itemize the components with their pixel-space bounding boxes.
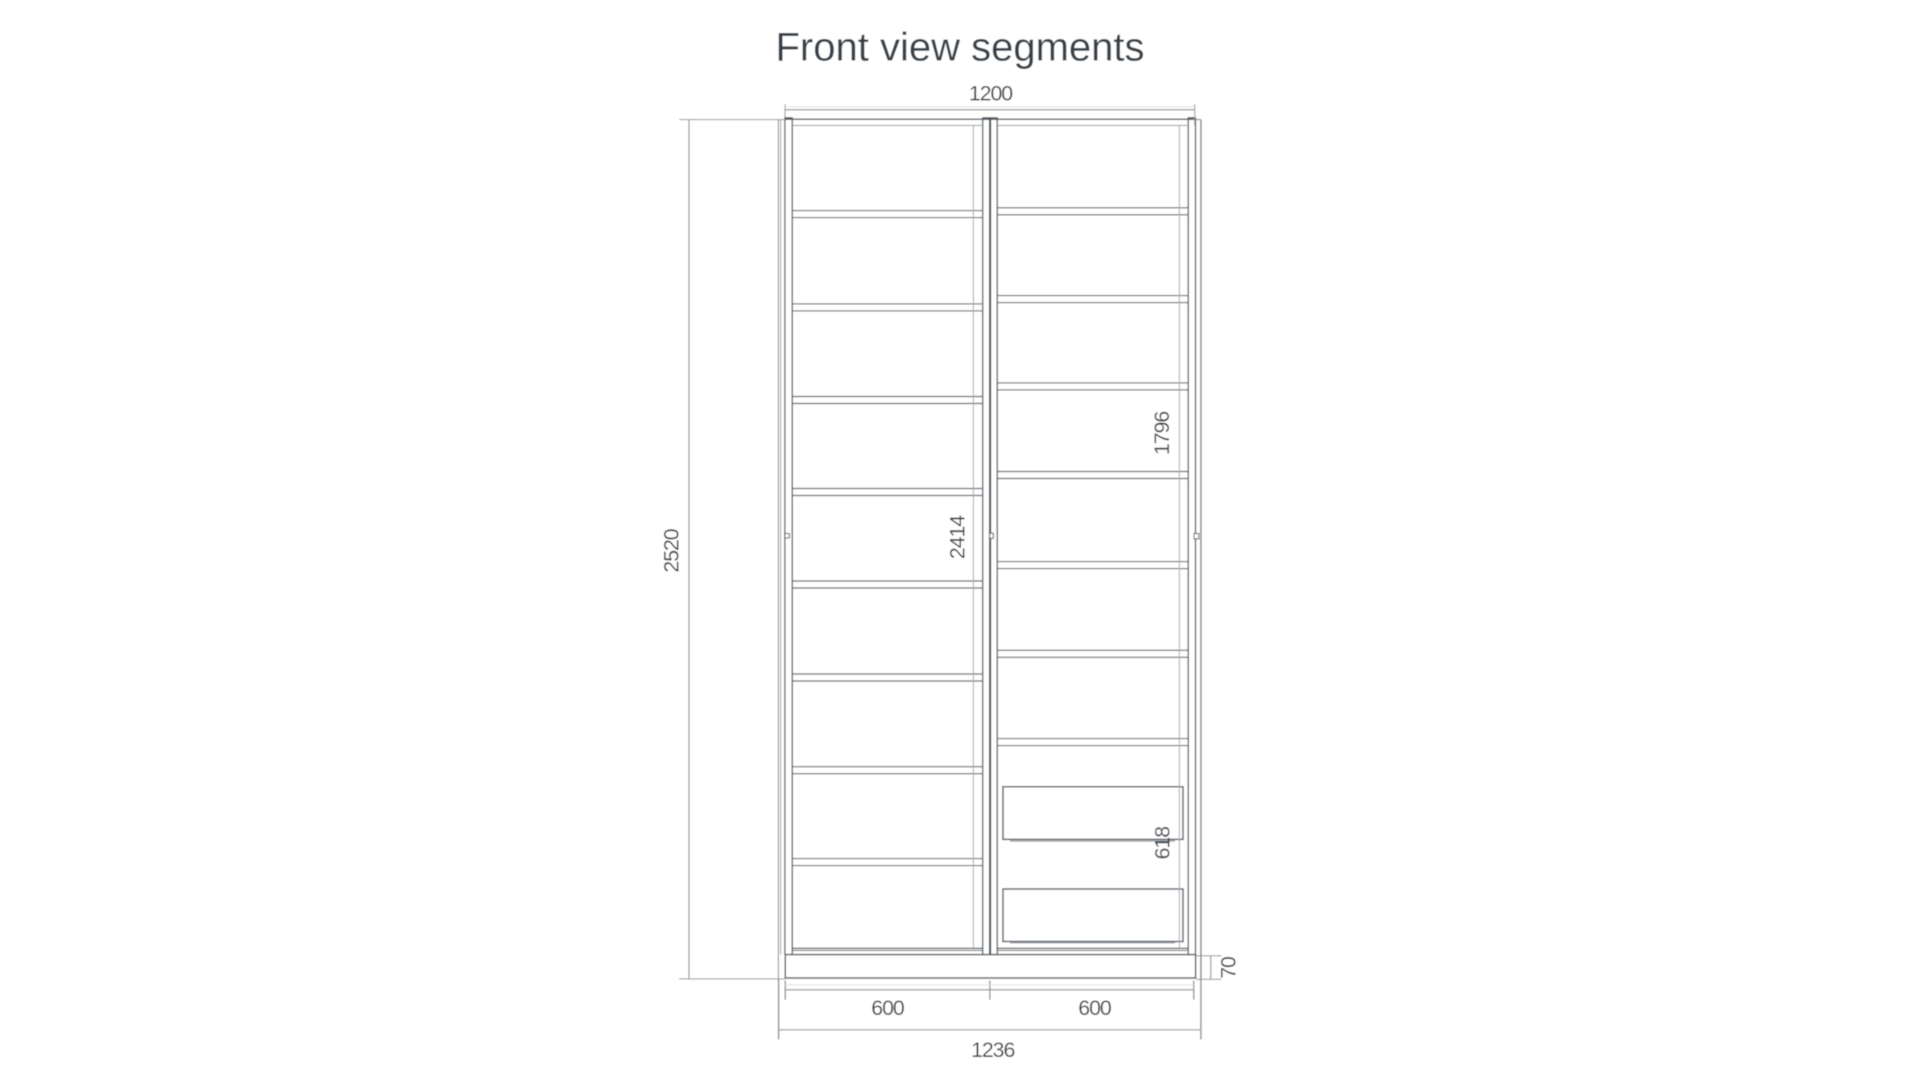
svg-text:2414: 2414 bbox=[946, 515, 970, 559]
svg-text:70: 70 bbox=[1217, 956, 1241, 979]
svg-text:1200: 1200 bbox=[969, 81, 1013, 105]
svg-text:600: 600 bbox=[1078, 996, 1112, 1020]
svg-text:1236: 1236 bbox=[971, 1038, 1014, 1062]
svg-text:600: 600 bbox=[871, 996, 905, 1020]
svg-text:1796: 1796 bbox=[1150, 412, 1174, 455]
svg-text:2520: 2520 bbox=[660, 528, 684, 572]
svg-text:Front view segments: Front view segments bbox=[775, 26, 1144, 70]
svg-text:618: 618 bbox=[1151, 827, 1175, 860]
